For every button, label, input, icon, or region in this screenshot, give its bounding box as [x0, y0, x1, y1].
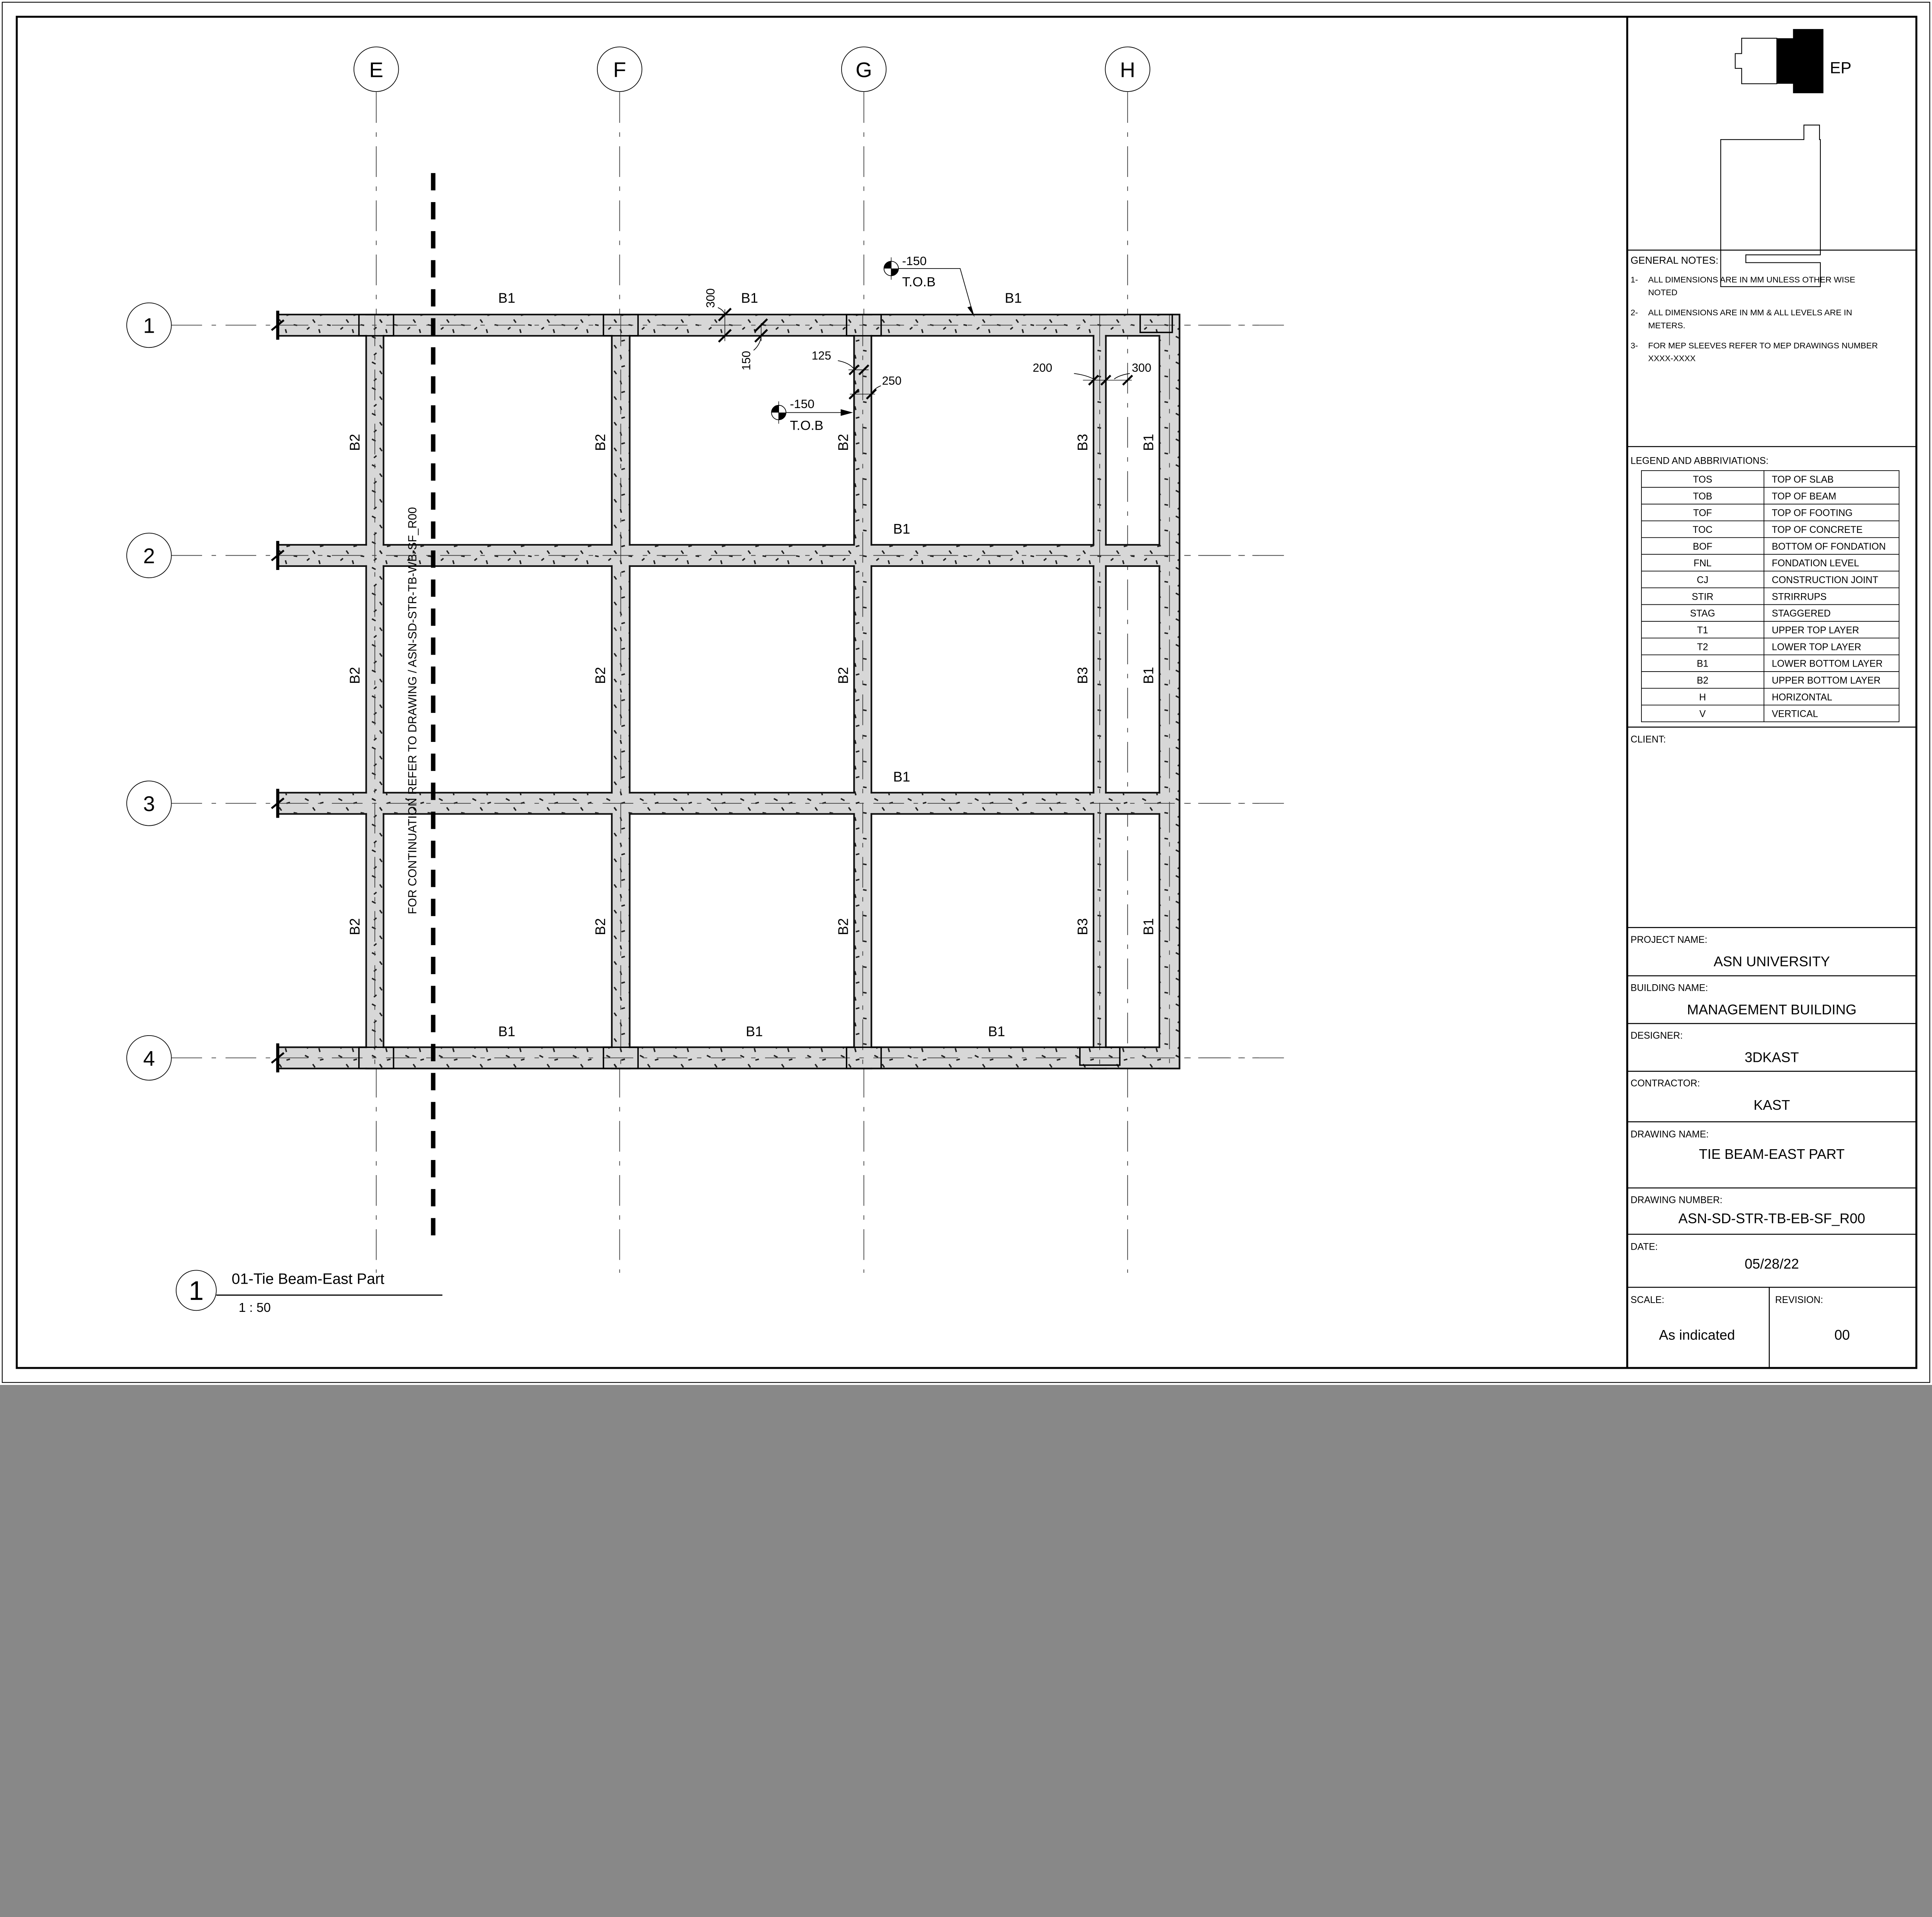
svg-text:FONDATION LEVEL: FONDATION LEVEL [1772, 558, 1859, 569]
horizontal-beam-labels: B1 B1 B1 B1 B1 B1 B1 B1 [498, 290, 1022, 1039]
dim-text: 150 [740, 351, 753, 371]
dim-text: 300 [704, 288, 717, 308]
svg-text:TOC: TOC [1693, 525, 1713, 535]
beam-label: B3 [1075, 918, 1090, 935]
grid-label-4: 4 [143, 1046, 155, 1070]
legend-rows: TOSTOP OF SLAB TOBTOP OF BEAM TOFTOP OF … [1690, 475, 1886, 720]
grid-label-3: 3 [143, 792, 155, 816]
contractor-value: KAST [1753, 1097, 1790, 1113]
svg-text:UPPER TOP LAYER: UPPER TOP LAYER [1772, 625, 1859, 636]
beam-label: B1 [1141, 434, 1156, 451]
titleblock-fields: CLIENT: PROJECT NAME: ASN UNIVERSITY BUI… [1631, 734, 1865, 1343]
drawing-sheet: FOR CONTINUATION REFER TO DRAWING / ASN-… [0, 0, 1932, 1385]
grid-lines [172, 92, 1284, 1272]
beam-label: B2 [592, 918, 608, 935]
svg-text:TOP OF CONCRETE: TOP OF CONCRETE [1772, 525, 1862, 535]
note-text: ALL DIMENSIONS ARE IN MM UNLESS OTHER WI… [1648, 275, 1855, 284]
logo-text: EP [1830, 58, 1852, 77]
view-scale: 1 : 50 [239, 1301, 271, 1315]
note-text: XXXX-XXXX [1648, 354, 1696, 363]
svg-text:TOP OF BEAM: TOP OF BEAM [1772, 491, 1836, 502]
drawing-name-label: DRAWING NAME: [1631, 1129, 1709, 1140]
beam-label: B1 [741, 290, 758, 306]
dim-text: 125 [812, 349, 832, 362]
svg-text:STAGGERED: STAGGERED [1772, 609, 1830, 619]
dim-text: 250 [882, 374, 902, 387]
designer-value: 3DKAST [1745, 1049, 1799, 1065]
general-notes: GENERAL NOTES: 1- ALL DIMENSIONS ARE IN … [1631, 255, 1878, 363]
beam-center-lines [278, 315, 1259, 1068]
svg-text:T1: T1 [1697, 625, 1708, 636]
grid-label-1: 1 [143, 314, 155, 338]
svg-text:B2: B2 [1697, 675, 1708, 686]
beam-label: B3 [1075, 667, 1090, 684]
project-label: PROJECT NAME: [1631, 935, 1708, 945]
svg-text:STRIRRUPS: STRIRRUPS [1772, 592, 1827, 602]
continuation-note: FOR CONTINUATION REFER TO DRAWING / ASN-… [406, 507, 419, 914]
spot-level-1: -150 T.O.B [884, 254, 975, 317]
logo-solid-shape [1777, 29, 1823, 93]
svg-text:TOB: TOB [1693, 491, 1712, 502]
revision-value: 00 [1834, 1327, 1850, 1343]
note-text: ALL DIMENSIONS ARE IN MM & ALL LEVELS AR… [1648, 308, 1852, 317]
date-value: 05/28/22 [1745, 1256, 1799, 1272]
level-ref: T.O.B [902, 275, 936, 289]
svg-text:LOWER TOP LAYER: LOWER TOP LAYER [1772, 642, 1861, 652]
level-value: -150 [902, 254, 927, 268]
note-number: 2- [1631, 308, 1638, 317]
grid-label-g: G [855, 58, 872, 82]
note-text: METERS. [1648, 320, 1685, 330]
svg-text:VERTICAL: VERTICAL [1772, 709, 1818, 720]
beam-label: B3 [1075, 434, 1090, 451]
svg-text:FNL: FNL [1694, 558, 1711, 569]
svg-text:STIR: STIR [1692, 592, 1713, 602]
svg-text:BOF: BOF [1693, 541, 1712, 552]
drawing-name-value: TIE BEAM-EAST PART [1699, 1146, 1845, 1162]
vertical-beam-labels: B2 B2 B2 B3 B1 B2 B2 B2 B3 B1 B2 B2 B2 B… [347, 434, 1156, 935]
svg-text:STAG: STAG [1690, 609, 1715, 619]
note-number: 1- [1631, 275, 1638, 284]
note-text: FOR MEP SLEEVES REFER TO MEP DRAWINGS NU… [1648, 340, 1878, 350]
beam-label: B1 [746, 1023, 763, 1039]
svg-text:TOS: TOS [1693, 475, 1712, 485]
beam-label: B1 [893, 521, 910, 537]
legend-title: LEGEND AND ABBRIVIATIONS: [1631, 456, 1769, 466]
note-text: NOTED [1648, 287, 1677, 297]
company-logo: EP [1721, 29, 1851, 287]
continuation-note-text: FOR CONTINUATION REFER TO DRAWING / ASN-… [406, 507, 419, 914]
grid-bubbles-columns: E F G H [354, 47, 1150, 92]
grid-label-e: E [369, 58, 383, 82]
grid-label-2: 2 [143, 544, 155, 568]
view-number: 1 [189, 1276, 204, 1306]
svg-text:V: V [1699, 709, 1706, 720]
svg-text:CONSTRUCTION JOINT: CONSTRUCTION JOINT [1772, 575, 1878, 585]
dim-text: 200 [1033, 362, 1053, 374]
beam-label: B2 [347, 434, 362, 451]
grid-label-h: H [1120, 58, 1135, 82]
beam-label: B1 [1141, 918, 1156, 935]
svg-text:TOP OF FOOTING: TOP OF FOOTING [1772, 508, 1852, 519]
beam-label: B2 [592, 667, 608, 684]
logo-outline-shape [1735, 38, 1777, 84]
level-value: -150 [790, 397, 815, 411]
beam-label: B2 [347, 918, 362, 935]
revision-label: REVISION: [1775, 1295, 1823, 1305]
svg-text:TOF: TOF [1693, 508, 1712, 519]
beam-label: B1 [498, 290, 515, 306]
note-number: 3- [1631, 340, 1638, 350]
logo-building-outline [1721, 125, 1820, 287]
beam-break-marks [272, 311, 284, 1072]
legend-section: LEGEND AND ABBRIVIATIONS: TOSTOP OF SLAB… [1631, 456, 1899, 722]
grid-label-f: F [613, 58, 626, 82]
svg-text:UPPER BOTTOM LAYER: UPPER BOTTOM LAYER [1772, 675, 1880, 686]
scale-label: SCALE: [1631, 1295, 1664, 1305]
svg-text:CJ: CJ [1697, 575, 1708, 585]
beam-label: B1 [893, 769, 910, 785]
beam-label: B2 [347, 667, 362, 684]
building-value: MANAGEMENT BUILDING [1687, 1002, 1857, 1017]
general-notes-title: GENERAL NOTES: [1631, 255, 1718, 266]
contractor-label: CONTRACTOR: [1631, 1078, 1700, 1089]
beam-label: B1 [1141, 667, 1156, 684]
svg-text:B1: B1 [1697, 659, 1708, 669]
drawing-number-value: ASN-SD-STR-TB-EB-SF_R00 [1679, 1210, 1866, 1226]
svg-text:T2: T2 [1697, 642, 1708, 652]
dim-text: 300 [1132, 362, 1151, 374]
svg-text:H: H [1699, 692, 1706, 703]
view-title: 01-Tie Beam-East Part [232, 1271, 384, 1288]
sheet-frame [17, 17, 1916, 1368]
level-ref: T.O.B [790, 418, 823, 433]
beam-label: B1 [498, 1023, 515, 1039]
beam-label: B2 [835, 667, 851, 684]
dimension-200-300-h: 200 300 [1033, 362, 1151, 385]
column-markers [359, 315, 1172, 1068]
grid-bubbles-rows: 1 2 3 4 [127, 303, 172, 1080]
beam-label: B2 [835, 918, 851, 935]
spot-level-2: -150 T.O.B [772, 397, 853, 433]
svg-text:LOWER BOTTOM LAYER: LOWER BOTTOM LAYER [1772, 659, 1883, 669]
tie-beam-plan-sheet: FOR CONTINUATION REFER TO DRAWING / ASN-… [0, 0, 1932, 1385]
beam-label: B2 [835, 434, 851, 451]
beam-label: B2 [592, 434, 608, 451]
beam-label: B1 [1005, 290, 1022, 306]
designer-label: DESIGNER: [1631, 1031, 1683, 1041]
sheet-outer-border [2, 2, 1930, 1383]
building-label: BUILDING NAME: [1631, 983, 1708, 993]
client-label: CLIENT: [1631, 734, 1666, 745]
view-title-block: 1 01-Tie Beam-East Part 1 : 50 [176, 1270, 442, 1315]
project-value: ASN UNIVERSITY [1714, 954, 1830, 970]
drawing-number-label: DRAWING NUMBER: [1631, 1195, 1723, 1205]
beam-label: B1 [988, 1023, 1005, 1039]
date-label: DATE: [1631, 1242, 1658, 1252]
svg-text:HORIZONTAL: HORIZONTAL [1772, 692, 1832, 703]
svg-text:TOP OF SLAB: TOP OF SLAB [1772, 475, 1833, 485]
scale-value: As indicated [1659, 1327, 1735, 1343]
svg-text:BOTTOM OF FONDATION: BOTTOM OF FONDATION [1772, 541, 1886, 552]
